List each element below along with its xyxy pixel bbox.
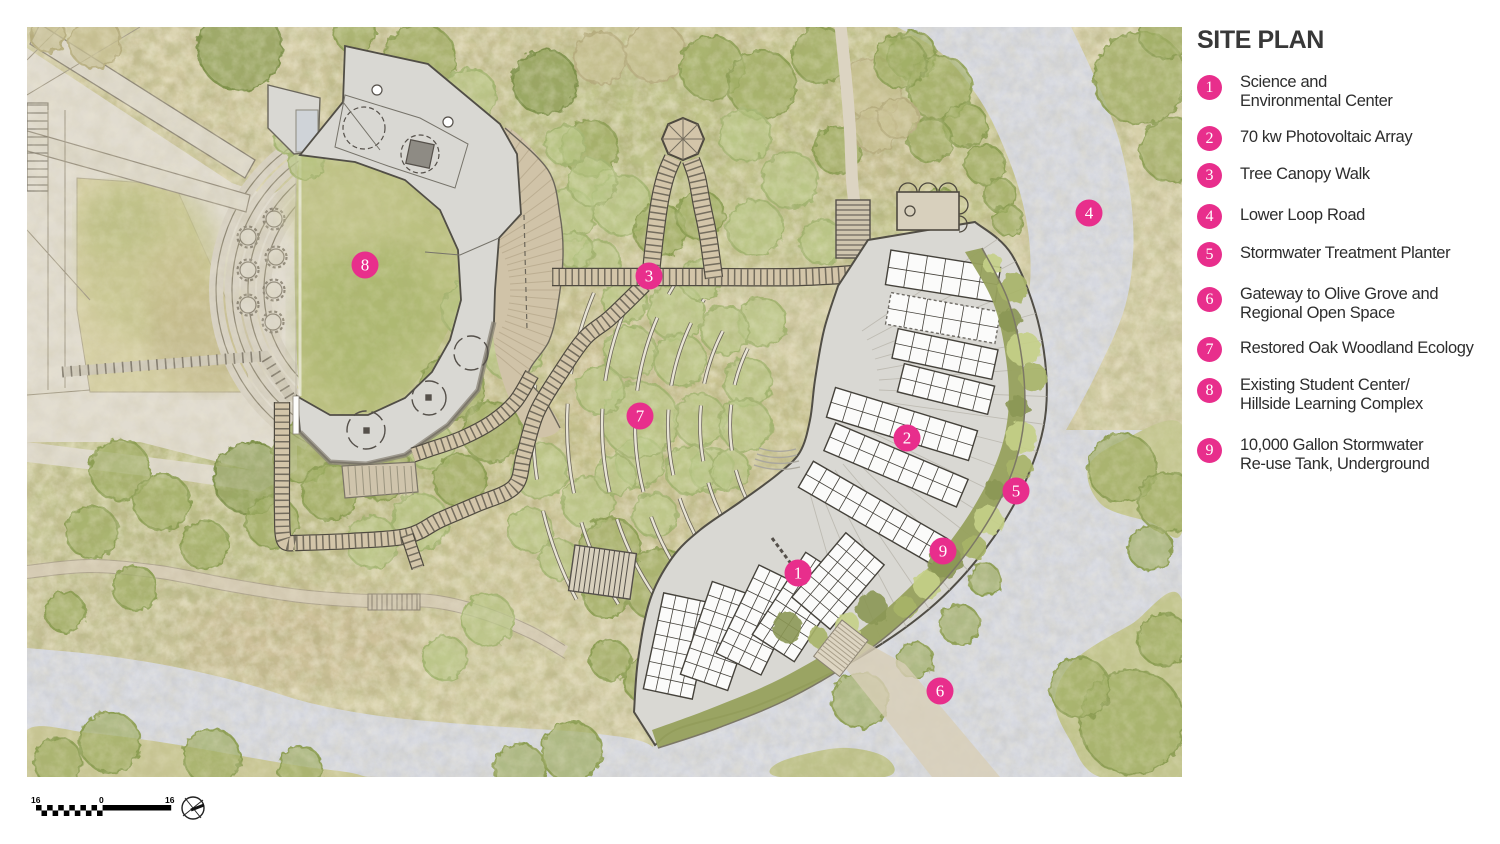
svg-text:6: 6 bbox=[936, 682, 945, 701]
svg-text:7: 7 bbox=[636, 407, 645, 426]
svg-text:0: 0 bbox=[99, 795, 104, 805]
svg-text:3: 3 bbox=[645, 267, 654, 286]
svg-text:16: 16 bbox=[31, 795, 41, 805]
svg-text:9: 9 bbox=[939, 542, 948, 561]
svg-text:1: 1 bbox=[794, 564, 803, 583]
svg-text:2: 2 bbox=[903, 429, 912, 448]
svg-text:5: 5 bbox=[1012, 482, 1021, 501]
svg-text:8: 8 bbox=[361, 256, 370, 275]
svg-text:16: 16 bbox=[165, 795, 175, 805]
svg-text:4: 4 bbox=[1085, 204, 1094, 223]
